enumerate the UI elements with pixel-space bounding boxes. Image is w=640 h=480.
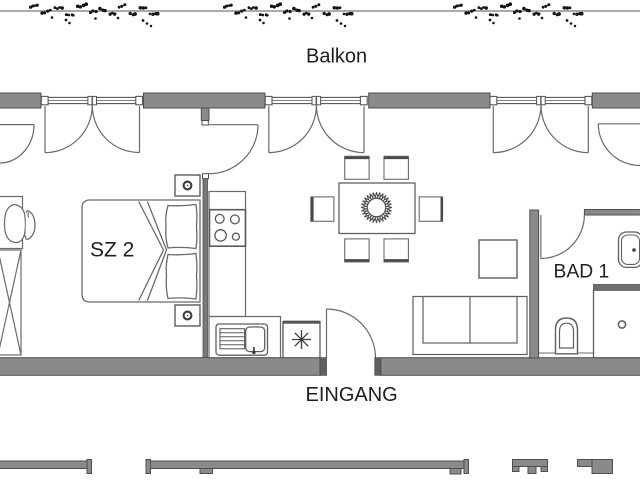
- svg-text:SZ 2: SZ 2: [90, 239, 134, 262]
- svg-text:BAD 1: BAD 1: [554, 262, 610, 283]
- svg-text:Balkon: Balkon: [306, 46, 367, 68]
- svg-text:EINGANG: EINGANG: [306, 384, 398, 406]
